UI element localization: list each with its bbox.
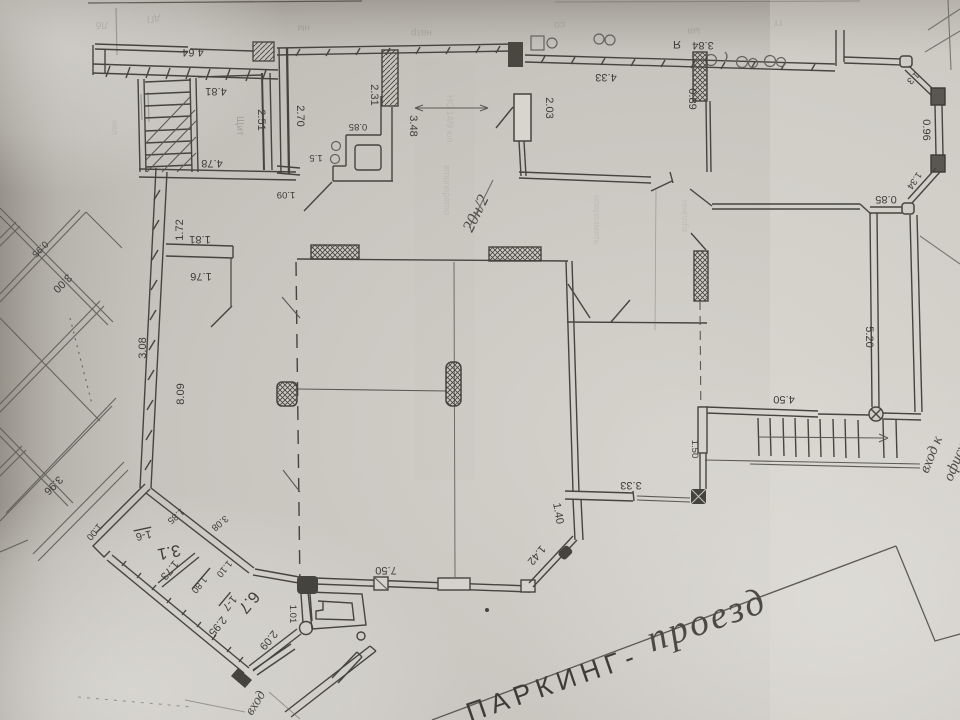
svg-text:2.70: 2.70	[294, 105, 306, 126]
svg-text:1.76: 1.76	[190, 270, 211, 282]
svg-text:генплбх: генплбх	[680, 200, 690, 233]
svg-text:0.85: 0.85	[349, 121, 368, 132]
svg-text:2.03: 2.03	[543, 97, 555, 118]
svg-text:3.08: 3.08	[137, 337, 149, 358]
svg-text:5.20: 5.20	[863, 326, 875, 347]
svg-text:3.48: 3.48	[407, 115, 419, 136]
svg-text:1.81: 1.81	[189, 233, 210, 245]
svg-text:8.09: 8.09	[175, 383, 187, 404]
svg-text:0.96: 0.96	[920, 119, 932, 140]
svg-text:0.89: 0.89	[686, 88, 698, 109]
svg-text:дП: дП	[147, 13, 160, 24]
svg-text:2.51: 2.51	[255, 109, 267, 130]
svg-text:Лб: Лб	[95, 19, 108, 31]
svg-text:вmunepamo: вmunepamo	[442, 165, 452, 215]
svg-text:3.33: 3.33	[620, 479, 641, 491]
svg-text:2.31: 2.31	[368, 84, 380, 105]
svg-text:ыя: ыя	[687, 25, 700, 36]
svg-text:1.01: 1.01	[287, 605, 298, 624]
svg-text:0.85: 0.85	[875, 193, 896, 205]
svg-text:гт: гт	[773, 17, 782, 28]
svg-text:1.09: 1.09	[277, 189, 296, 200]
svg-text:оперпамять: оперпамять	[592, 195, 602, 245]
svg-text:3.84: 3.84	[692, 39, 713, 51]
svg-text:1.5: 1.5	[309, 152, 322, 163]
svg-text:натр: натр	[411, 27, 432, 38]
svg-text:4.64: 4.64	[182, 46, 203, 58]
svg-text:4.78: 4.78	[201, 157, 222, 169]
svg-text:1.72: 1.72	[174, 219, 186, 240]
svg-text:нм: нм	[297, 22, 310, 33]
svg-text:со: со	[554, 19, 565, 30]
svg-text:Я: Я	[673, 38, 681, 50]
svg-text:нвл: нвл	[110, 120, 120, 135]
svg-text:4.81: 4.81	[205, 85, 226, 97]
svg-text:4.50: 4.50	[773, 393, 794, 405]
svg-text:НС 14/9 юл: НС 14/9 юл	[445, 95, 455, 142]
svg-text:4.33: 4.33	[595, 71, 616, 83]
svg-text:1.50: 1.50	[689, 440, 700, 459]
svg-text:Щит: Щит	[234, 116, 245, 136]
svg-text:7.50: 7.50	[375, 564, 396, 576]
